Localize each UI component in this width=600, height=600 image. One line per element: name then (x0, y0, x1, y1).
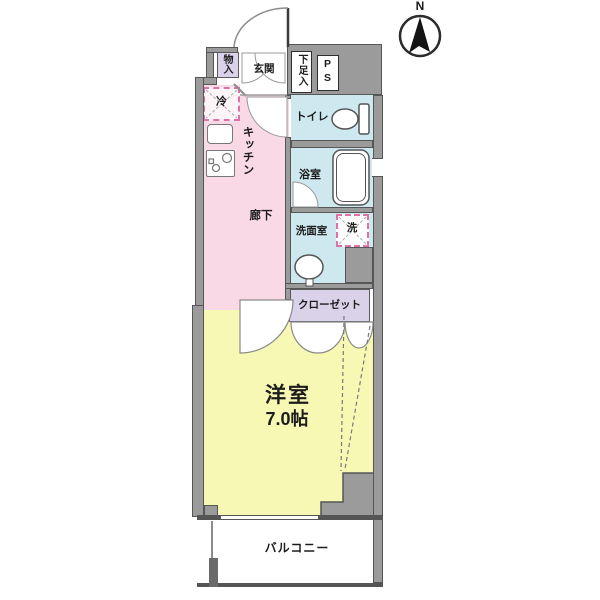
stove-burners-icon (209, 154, 232, 172)
storage-label: 物入 (221, 54, 231, 74)
room-step-outline (321, 473, 373, 517)
entrance-step-diagonal (234, 84, 246, 96)
closet-door-fan-left (291, 322, 345, 353)
western-room-label: 洋室 (256, 384, 320, 407)
bathroom-door-fan (293, 182, 318, 207)
western-room-size: 7.0帖 (252, 410, 322, 430)
bathtub-icon (333, 150, 369, 205)
refrigerator-label: 冷 (203, 96, 240, 108)
room-door-fan (240, 300, 293, 353)
entrance-door-arc (234, 8, 288, 47)
toilet-icon (332, 104, 369, 134)
washroom-label: 洗面室 (291, 226, 332, 238)
washer-label: 洗 (341, 223, 363, 235)
bathroom-label: 浴室 (296, 169, 324, 181)
shoe-cabinet-label: 下足入 (296, 54, 306, 87)
entrance-label: 玄関 (247, 64, 281, 76)
balcony-label: バルコニー (247, 542, 347, 555)
floor-plan: N 物入 玄関 下足入 PS 冷 キッチン 廊下 トイレ 浴室 洗面室 洗 クロ… (0, 0, 600, 600)
compass-icon (400, 16, 440, 56)
washbasin-icon (295, 255, 323, 286)
closet-label: クローゼット (293, 300, 366, 312)
pipe-space-label: PS (322, 58, 333, 86)
toilet-label: トイレ (293, 111, 331, 123)
corridor-label: 廊下 (245, 210, 277, 223)
kitchen-label: キッチン (241, 126, 253, 176)
compass-label: N (408, 0, 432, 13)
